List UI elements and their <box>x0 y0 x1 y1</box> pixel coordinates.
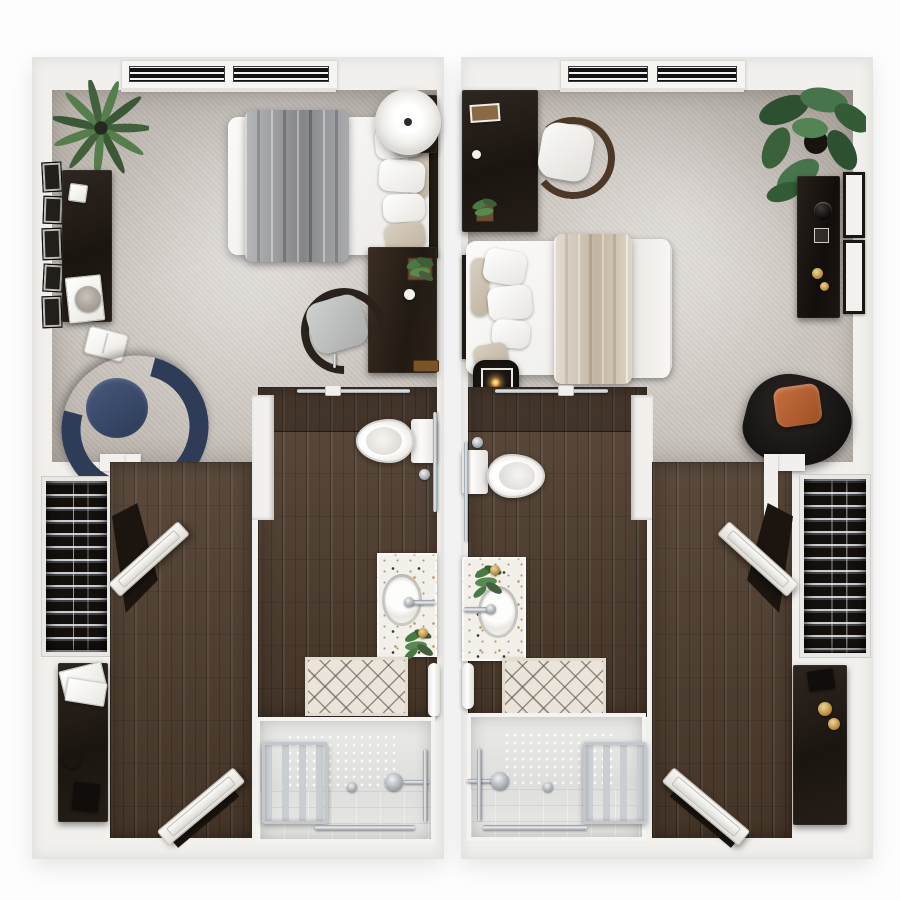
gold-candle <box>820 282 829 291</box>
wall-frame <box>41 296 62 329</box>
vanity-plant <box>470 558 504 602</box>
gold-dish <box>418 628 428 638</box>
closet-hanging-clothes <box>800 475 870 657</box>
window-pair <box>560 60 746 90</box>
towel-ladder <box>583 742 647 824</box>
toilet-flush-button <box>419 469 430 480</box>
white-pillow <box>486 284 533 322</box>
dark-book <box>72 782 101 813</box>
gray-duvet <box>245 110 349 262</box>
wall-frame <box>42 263 63 292</box>
toilet-seat <box>366 427 402 455</box>
desk-photo-frame <box>68 183 88 203</box>
desk-cup <box>472 150 481 159</box>
rust-pillow <box>772 382 823 428</box>
faucet-base <box>404 597 414 607</box>
grab-bar <box>464 442 468 542</box>
faucet-base <box>486 604 496 614</box>
shower-head <box>491 772 509 790</box>
glass-box <box>814 228 829 243</box>
shower-grab-bar <box>483 825 587 830</box>
toilet-seat <box>499 462 535 490</box>
sliding-door-rail <box>495 389 608 393</box>
floor-drain <box>543 782 553 792</box>
unit-right <box>462 58 872 858</box>
wall-frame <box>43 196 64 225</box>
window-pane <box>233 66 329 82</box>
towel-pedestal <box>462 663 474 709</box>
gold-candle <box>828 718 840 730</box>
palm-plant <box>53 80 149 176</box>
gold-dish <box>490 565 500 575</box>
diamond-lattice-rug <box>502 658 606 716</box>
door-roller <box>325 385 341 396</box>
tan-throw <box>554 234 632 384</box>
shower-head <box>385 773 403 791</box>
gold-candle <box>818 702 832 716</box>
toilet <box>356 419 414 463</box>
round-jar <box>63 750 81 768</box>
gold-candle <box>812 268 823 279</box>
white-pillow <box>382 193 425 223</box>
pocket-niche <box>631 395 653 520</box>
wall-console <box>797 176 840 318</box>
barrel-chair-cushion <box>86 378 148 438</box>
toilet-flush-button <box>472 437 483 448</box>
roll-in-shower <box>467 713 646 841</box>
round-lamp-table <box>375 89 441 155</box>
floor-drain <box>347 782 357 792</box>
desk-plant <box>469 192 501 230</box>
wall-frame <box>41 161 63 192</box>
window-pane <box>657 66 737 82</box>
woven-hat <box>75 286 101 312</box>
picture-frame <box>843 172 865 238</box>
white-pillow <box>481 247 528 288</box>
pocket-niche <box>252 395 274 520</box>
window-sill <box>560 88 744 92</box>
window-pane <box>568 66 648 82</box>
unit-left <box>33 58 443 858</box>
door-roller <box>558 385 574 396</box>
desk-photo-frame <box>469 103 500 123</box>
glide-bar <box>477 749 481 821</box>
diamond-lattice-rug <box>305 657 408 716</box>
lamp-finial <box>404 118 412 126</box>
roll-in-shower <box>256 717 435 843</box>
window-pair <box>121 60 338 90</box>
wall-frame <box>41 228 62 261</box>
picture-frame <box>843 240 865 314</box>
wood-tray <box>413 360 439 372</box>
glide-bar <box>423 750 427 822</box>
sliding-door-rail <box>297 389 410 393</box>
floor-plan <box>0 0 900 900</box>
book-spine <box>102 333 109 354</box>
black-bowl <box>814 202 832 220</box>
dark-book <box>807 668 836 691</box>
grab-bar <box>433 412 437 512</box>
candle-flame <box>491 378 500 387</box>
closet-hanging-clothes <box>42 477 111 656</box>
window-sill <box>121 88 336 92</box>
towel-pedestal <box>428 663 440 717</box>
trinket-dish <box>404 289 415 300</box>
office-chair-base <box>333 354 336 368</box>
shower-grab-bar <box>315 825 415 830</box>
white-pillow <box>378 158 426 193</box>
console-plant <box>403 250 437 286</box>
towel-ladder <box>262 742 328 824</box>
